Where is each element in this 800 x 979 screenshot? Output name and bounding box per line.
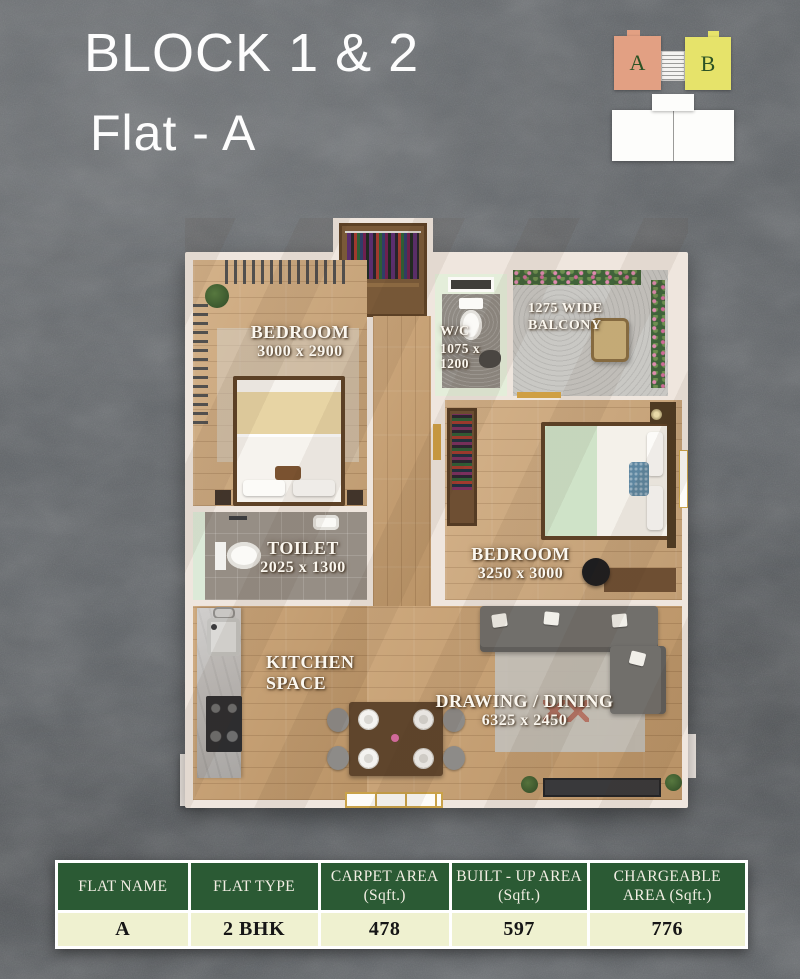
plant xyxy=(521,776,538,793)
bedroom1-nightstand xyxy=(215,490,231,505)
bedroom2-door-threshold xyxy=(433,424,441,460)
bedroom1-pillow xyxy=(243,480,285,496)
bedroom1-curtain-left xyxy=(193,304,208,424)
balcony-flower-bed-right xyxy=(651,280,665,388)
plate xyxy=(414,749,433,768)
col-header-chargeable-area: CHARGEABLE AREA (Sqft.) xyxy=(590,863,745,910)
table-flower xyxy=(391,734,399,742)
bedroom1-label: BEDROOM 3000 x 2900 xyxy=(233,322,367,362)
drawing-dining-label: DRAWING / DINING 6325 x 2450 xyxy=(367,691,682,731)
bedroom1-nightstand xyxy=(347,490,363,505)
bedroom1-bed xyxy=(233,376,345,506)
drawing-name: DRAWING / DINING xyxy=(367,691,682,712)
dining-chair xyxy=(327,746,349,770)
bedroom2-label: BEDROOM 3250 x 3000 xyxy=(445,544,596,584)
bedroom2-pillow xyxy=(647,486,663,530)
bedroom1-blanket xyxy=(237,392,341,434)
page-title: BLOCK 1 & 2 xyxy=(84,22,419,84)
balcony-line2: BALCONY xyxy=(528,318,603,335)
key-plan-building-footprint xyxy=(612,110,734,161)
floor-plan: BEDROOM 3000 x 2900 W/C 1075 x 1200 1275… xyxy=(185,218,688,808)
cell-chargeable-area: 776 xyxy=(590,913,745,946)
room-drawing-dining: DRAWING / DINING 6325 x 2450 xyxy=(367,606,682,800)
bedroom2-bed xyxy=(541,422,671,540)
plate xyxy=(359,749,378,768)
col-header-flat-name: FLAT NAME xyxy=(58,863,188,910)
sofa-pillow xyxy=(611,613,627,627)
kitchen-label: KITCHEN SPACE xyxy=(266,652,355,694)
toilet-name: TOILET xyxy=(239,538,367,559)
toilet-tank xyxy=(215,542,226,570)
area-table: FLAT NAME FLAT TYPE CARPET AREA (Sqft.) … xyxy=(55,860,748,949)
kitchen-line2: SPACE xyxy=(266,673,355,694)
balcony-line1: 1275 WIDE xyxy=(528,301,603,318)
balcony-door-threshold xyxy=(517,392,561,398)
toilet-shower xyxy=(229,516,247,520)
dining-window xyxy=(345,792,443,808)
room-kitchen: KITCHEN SPACE xyxy=(193,606,367,800)
balcony-flower-bed xyxy=(513,270,641,285)
wc-dims-1: 1075 x xyxy=(440,341,480,357)
plant xyxy=(665,774,682,791)
cell-carpet-area: 478 xyxy=(321,913,449,946)
wc-mat xyxy=(479,350,501,368)
block-a-highlight: A xyxy=(614,36,661,90)
sofa-pillow xyxy=(629,650,647,666)
cell-builtup-area: 597 xyxy=(452,913,587,946)
cell-flat-name: A xyxy=(58,913,188,946)
bedroom2-clothes xyxy=(452,414,472,490)
bedroom1-plant xyxy=(205,284,229,308)
bedroom2-accent-pillow xyxy=(629,462,649,496)
wc-name: W/C xyxy=(440,324,480,341)
kitchen-line1: KITCHEN xyxy=(266,652,355,673)
key-plan-connector xyxy=(652,94,694,111)
cell-flat-type: 2 BHK xyxy=(191,913,318,946)
wc-cistern xyxy=(459,298,483,309)
block-a-label: A xyxy=(614,36,661,90)
toilet-basin xyxy=(313,515,339,530)
bedroom2-headboard xyxy=(667,418,676,548)
bedroom2-window xyxy=(679,450,688,508)
room-toilet: TOILET 2025 x 1300 xyxy=(193,512,367,600)
bedroom2-name: BEDROOM xyxy=(445,544,596,565)
bedroom1-curtain xyxy=(225,260,349,284)
balcony-label: 1275 WIDE BALCONY xyxy=(528,301,603,334)
toilet-label: TOILET 2025 x 1300 xyxy=(239,538,367,578)
tv-console xyxy=(543,778,661,797)
bedroom1-pillow xyxy=(293,480,335,496)
bedroom2-blanket xyxy=(545,426,597,536)
kitchen-stove xyxy=(206,696,242,752)
dining-chair xyxy=(327,708,349,732)
bedroom1-dims: 3000 x 2900 xyxy=(233,343,367,362)
wc-label: W/C 1075 x 1200 xyxy=(440,324,480,372)
room-bedroom-1: BEDROOM 3000 x 2900 xyxy=(193,260,367,506)
room-bedroom-2: BEDROOM 3250 x 3000 xyxy=(445,400,682,600)
key-plan-divider xyxy=(673,110,674,161)
wc-niche xyxy=(451,280,491,289)
flat-subtitle: Flat - A xyxy=(90,104,256,162)
drawing-dims: 6325 x 2450 xyxy=(367,712,682,731)
bedroom2-wardrobe xyxy=(447,408,477,526)
bedroom1-name: BEDROOM xyxy=(233,322,367,343)
key-plan-staircase xyxy=(661,51,685,81)
bedroom2-dims: 3250 x 3000 xyxy=(445,565,596,584)
bedroom2-pillow xyxy=(647,432,663,476)
kitchen-faucet xyxy=(211,624,217,630)
block-b-label: B xyxy=(685,37,731,90)
room-balcony: 1275 WIDE BALCONY xyxy=(513,270,668,396)
bedroom2-lamp xyxy=(651,409,662,420)
wc-dims-2: 1200 xyxy=(440,356,480,372)
col-header-builtup-area: BUILT - UP AREA (Sqft.) xyxy=(452,863,587,910)
hallway xyxy=(373,316,431,612)
room-wc: W/C 1075 x 1200 xyxy=(435,274,507,396)
bedroom1-accent-pillow xyxy=(275,466,301,480)
block-b-highlight: B xyxy=(685,37,731,90)
toilet-dims: 2025 x 1300 xyxy=(239,559,367,578)
bedroom2-desk xyxy=(604,568,676,592)
key-plan: A B xyxy=(605,26,750,168)
sofa-pillow xyxy=(543,611,559,625)
col-header-carpet-area: CARPET AREA (Sqft.) xyxy=(321,863,449,910)
toilet-wall-tile xyxy=(193,512,205,600)
dining-chair xyxy=(443,746,465,770)
col-header-flat-type: FLAT TYPE xyxy=(191,863,318,910)
kitchen-counter xyxy=(197,608,241,778)
bedroom2-side-table xyxy=(650,402,676,424)
sofa-pillow xyxy=(491,613,508,628)
